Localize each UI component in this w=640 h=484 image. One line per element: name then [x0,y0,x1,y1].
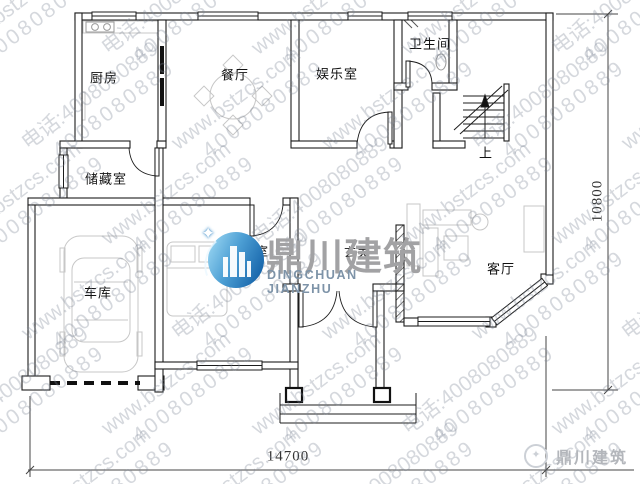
window-kitchen [92,12,136,20]
room-label-dining: 餐厅 [221,65,249,84]
footer-sparkle-icon: ✦ [524,444,548,468]
garage-car [60,236,142,372]
room-label-kitchen: 厨房 [90,68,118,87]
window-entertainment [348,12,382,20]
door-entry-left [299,291,337,327]
sparkle-icon: ✦ [201,224,215,244]
room-label-bathroom: 卫生间 [409,34,451,53]
porch-group [280,388,416,423]
kitchen-sliding-door [160,46,164,74]
room-label-entertainment: 娱乐室 [316,64,358,83]
stairs-group [454,84,509,141]
stairs-up-arrow [481,95,489,107]
logo-english-name: DINGCHUAN JIANZHU [267,268,423,296]
room-label-living: 客厅 [487,259,515,278]
dimension-height: 10800 [590,180,607,223]
window-storage [59,155,68,188]
stairs-up-label: 上 [479,143,493,162]
door-bathroom [406,61,432,87]
window-living [418,317,490,326]
dimension-width: 14700 [267,449,310,466]
footer-logo: ✦ 鼎川建筑 [524,444,628,468]
window-bathroom [408,12,452,20]
doors-group [50,61,432,383]
room-label-storage: 储藏室 [85,169,127,188]
dingchuan-building-icon: ✦ [208,232,264,288]
dingchuan-logo: ✦ 鼎川建筑 DINGCHUAN JIANZHU [208,230,423,290]
window-bay-diagonal [492,278,548,324]
footer-logo-text: 鼎川建筑 [556,444,628,468]
door-entry-right [339,291,377,327]
door-storage [129,148,159,176]
living-furniture [407,204,544,276]
window-bedroom [197,361,262,370]
window-dining [198,12,258,20]
room-label-garage: 车库 [84,283,112,302]
door-entertainment [357,112,392,144]
floorplan-canvas: 厨房 餐厅 娱乐室 卫生间 储藏室 车库 卧室 玄关 客厅 上 14700 10… [0,0,640,484]
